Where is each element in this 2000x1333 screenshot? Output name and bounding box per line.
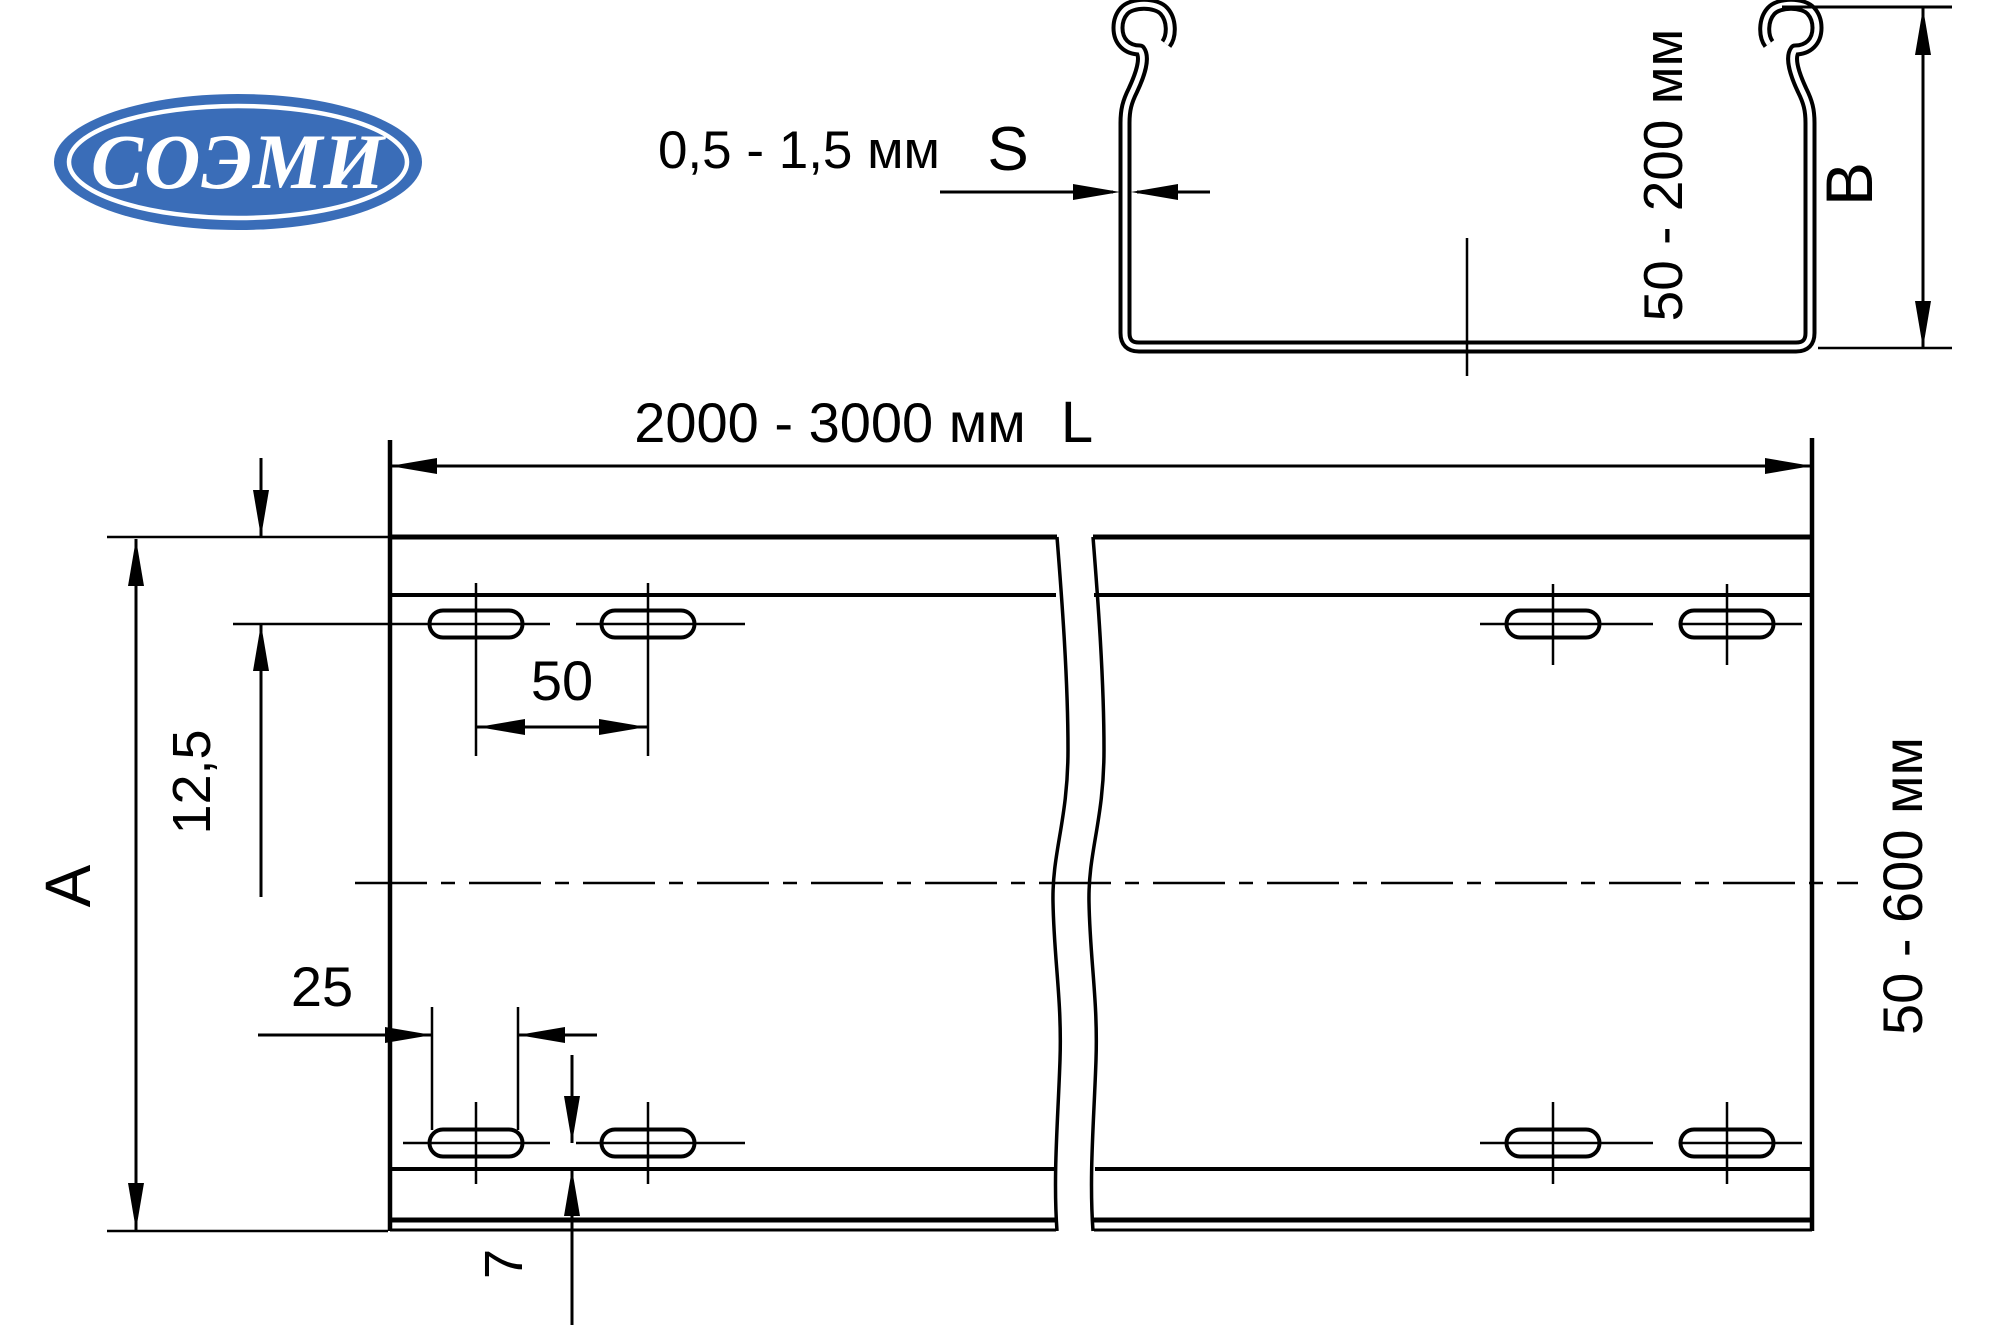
drawing-sheet: СОЭМИ 0,5 - 1,5 мм S 50 - 200 мм B — [0, 0, 2000, 1333]
length-label: 2000 - 3000 мм — [634, 391, 1025, 454]
arrowhead — [1131, 184, 1178, 200]
slot-length-dimension: 25 — [258, 955, 597, 1130]
length-dimension: 2000 - 3000 мм L — [390, 390, 1812, 474]
arrowhead — [1915, 301, 1931, 348]
arrowhead — [128, 539, 144, 586]
cross-section-view: 0,5 - 1,5 мм S 50 - 200 мм B — [658, 4, 1952, 376]
plan-view: 2000 - 3000 мм L A 12,5 50 — [32, 390, 1934, 1325]
arrowhead — [385, 1027, 432, 1043]
height-range-label: 50 - 200 мм — [1632, 29, 1694, 322]
slot-length-label: 25 — [291, 955, 353, 1018]
thickness-label: 0,5 - 1,5 мм — [658, 121, 940, 180]
arrowhead — [518, 1027, 565, 1043]
arrowhead — [564, 1096, 580, 1143]
bottom-offset-dimension: 7 — [474, 1055, 580, 1325]
arrowhead — [564, 1169, 580, 1216]
arrowhead — [1073, 184, 1120, 200]
hole-offset-label: 12,5 — [162, 729, 222, 834]
technical-drawing: СОЭМИ 0,5 - 1,5 мм S 50 - 200 мм B — [0, 0, 2000, 1333]
length-symbol: L — [1061, 390, 1093, 455]
arrowhead — [1915, 8, 1931, 55]
thickness-symbol: S — [987, 115, 1028, 184]
arrowhead — [599, 719, 646, 735]
arrowhead — [253, 490, 269, 537]
hole-spacing-dimension: 50 — [476, 649, 648, 735]
arrowhead — [1765, 458, 1812, 474]
arrowhead — [253, 624, 269, 671]
logo-text: СОЭМИ — [91, 118, 386, 205]
hole-offset-dimension: 12,5 — [162, 458, 269, 897]
width-dimension-a: A — [32, 537, 388, 1231]
company-logo: СОЭМИ — [54, 94, 422, 230]
arrowhead — [128, 1183, 144, 1230]
height-symbol: B — [1812, 162, 1886, 206]
bottom-offset-label: 7 — [474, 1249, 534, 1279]
arrowhead — [390, 458, 437, 474]
hole-spacing-label: 50 — [531, 649, 593, 712]
arrowhead — [478, 719, 525, 735]
width-symbol-label: A — [32, 864, 104, 907]
width-range-label: 50 - 600 мм — [1871, 737, 1934, 1035]
tray-outline — [390, 438, 1812, 1231]
